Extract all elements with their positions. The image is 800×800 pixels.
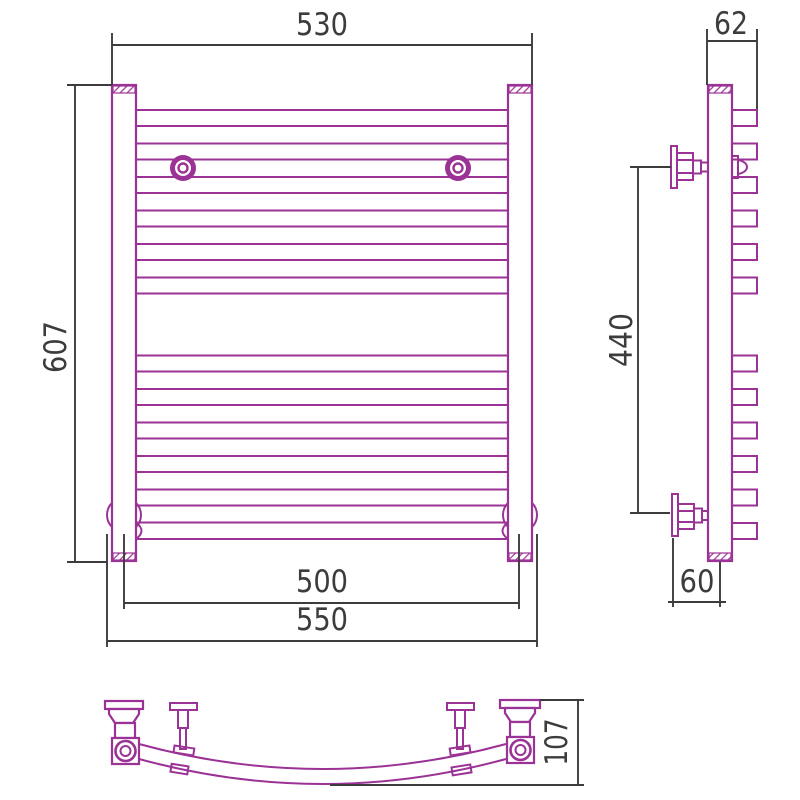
dim-front-inner-width: 500 [124, 534, 519, 609]
technical-drawing: 530 607 500 550 [0, 0, 800, 800]
bottom-collector [136, 523, 508, 540]
dim-label-107: 107 [539, 719, 575, 766]
mounting-boss-left [170, 155, 196, 181]
bottom-view: 107 [105, 700, 584, 785]
mounting-boss-right [445, 155, 471, 181]
side-view: 62 440 60 [604, 6, 757, 607]
valve-left [105, 701, 143, 764]
dim-label-607: 607 [38, 321, 74, 373]
dim-label-500: 500 [296, 564, 348, 600]
dim-label-60: 60 [680, 564, 715, 600]
valve-right [500, 700, 540, 763]
dim-side-bracket-span: 440 [604, 167, 671, 513]
dim-label-440: 440 [604, 313, 640, 367]
wall-bracket-bottom [672, 494, 708, 536]
side-post [708, 85, 732, 561]
front-view: 530 607 500 550 [38, 7, 537, 647]
dim-label-530: 530 [296, 7, 348, 43]
dim-label-550: 550 [296, 602, 348, 638]
bottom-bracket-right [447, 703, 474, 775]
bottom-bracket-left [170, 703, 197, 774]
rung-stubs [732, 110, 757, 539]
dim-label-62: 62 [714, 6, 748, 42]
dim-front-top-width: 530 [112, 7, 532, 85]
drawing-canvas: 530 607 500 550 [0, 0, 800, 800]
wall-bracket-top [671, 146, 708, 188]
dim-front-height: 607 [38, 85, 112, 562]
